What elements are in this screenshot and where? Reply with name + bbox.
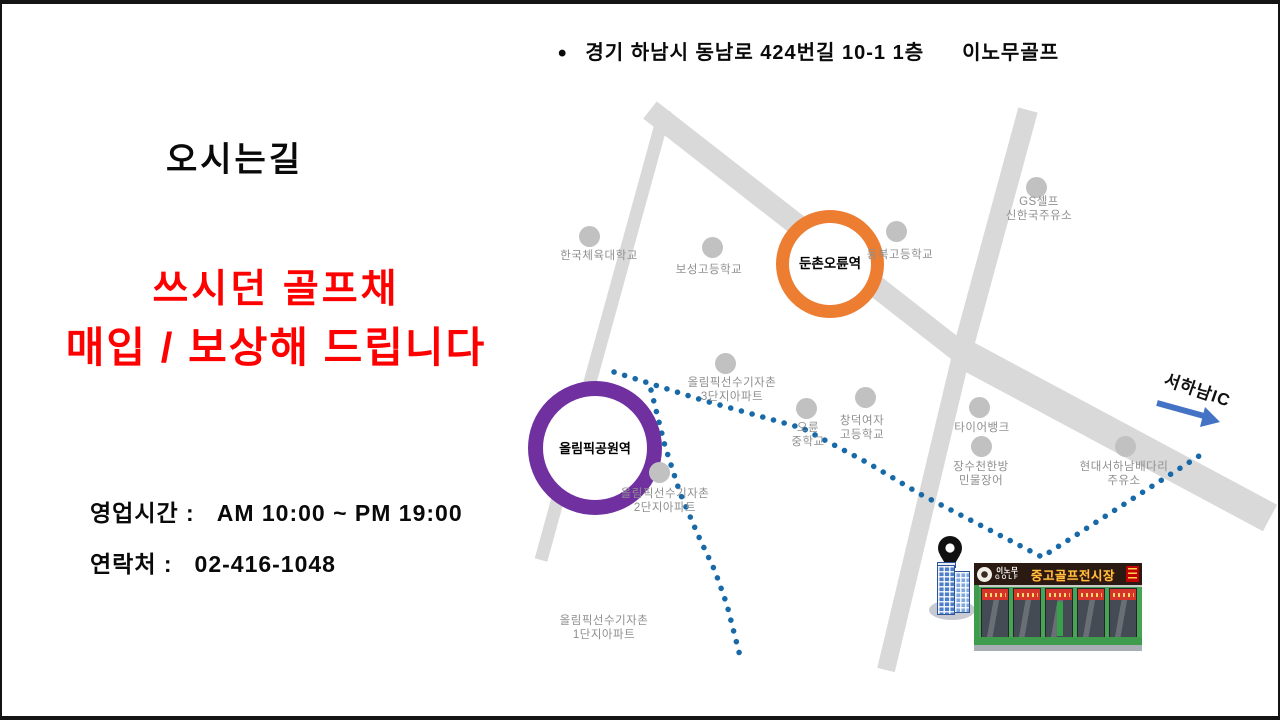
poi-dot xyxy=(715,353,736,374)
storefront-window xyxy=(1045,588,1073,638)
hours-label: 영업시간 : xyxy=(90,500,195,526)
window-green-banner xyxy=(1057,602,1063,636)
address-text: 경기 하남시 동남로 424번길 10-1 1층 xyxy=(585,42,924,64)
poi-dot xyxy=(971,436,992,457)
window-red-banner xyxy=(1014,589,1040,600)
window-glass xyxy=(982,600,1008,638)
store-sign: 이노무 GOLF 중고골프전시장 xyxy=(974,563,1142,585)
station-label: 올림픽공원역 xyxy=(557,441,633,456)
window-red-banner xyxy=(1078,589,1104,600)
store-logo-icon xyxy=(977,567,992,582)
poi-label: 올림픽선수기자촌1단지아파트 xyxy=(560,614,649,642)
map-road xyxy=(960,110,1028,360)
pavement-strip xyxy=(974,645,1142,651)
window-row xyxy=(979,587,1142,640)
flyer-canvas: •경기 하남시 동남로 424번길 10-1 1층이노무골프 오시는길 쓰시던 … xyxy=(0,0,1280,720)
page-title: 오시는길 xyxy=(166,132,303,181)
storefront-window xyxy=(1077,588,1105,638)
poi-dot xyxy=(702,237,723,258)
poi-label: 현대서하남배다리주유소 xyxy=(1080,460,1169,488)
promo-line-2: 매입 / 보상해 드립니다 xyxy=(12,327,540,369)
poi-label: 동북고등학교 xyxy=(867,248,933,262)
contact-label: 연락처 : xyxy=(90,551,173,577)
building-tower-back xyxy=(954,571,970,613)
storefront-windows xyxy=(974,585,1142,651)
direction-arrow-head xyxy=(1200,407,1220,427)
store-building-icon xyxy=(928,560,976,622)
poi-label: 타이어뱅크 xyxy=(954,421,1009,435)
green-pillar xyxy=(974,585,979,643)
poi-dot xyxy=(796,398,817,419)
info-block: 영업시간 :AM 10:00 ~ PM 19:00 연락처 :02-416-10… xyxy=(90,494,463,596)
sign-title: 중고골프전시장 xyxy=(1023,565,1123,584)
poi-label: 올림픽선수기자촌3단지아파트 xyxy=(688,376,777,404)
window-glass xyxy=(1078,600,1104,638)
route-dotted-line xyxy=(651,390,740,656)
sign-brand-bottom: GOLF xyxy=(995,575,1020,582)
hours-row: 영업시간 :AM 10:00 ~ PM 19:00 xyxy=(90,494,463,528)
map-road xyxy=(886,360,960,670)
grass-strip xyxy=(974,637,1142,645)
station-label: 둔촌오륜역 xyxy=(797,256,863,272)
poi-dot xyxy=(1115,436,1136,457)
storefront-photo: 이노무 GOLF 중고골프전시장 xyxy=(974,563,1142,651)
poi-dot xyxy=(969,397,990,418)
sign-brand-top: 이노무 xyxy=(996,567,1018,575)
hours-value: AM 10:00 ~ PM 19:00 xyxy=(217,500,463,526)
window-red-banner xyxy=(1046,589,1072,600)
promo-line-1: 쓰시던 골프채 xyxy=(12,270,540,309)
poi-label: GS셀프신한국주유소 xyxy=(1006,195,1072,223)
poi-label: 한국체육대학교 xyxy=(560,249,638,263)
window-red-banner xyxy=(982,589,1008,600)
sign-badge xyxy=(1126,566,1139,582)
window-red-banner xyxy=(1110,589,1136,600)
building-tower-front xyxy=(937,565,955,615)
storefront-window xyxy=(1109,588,1137,638)
window-glass xyxy=(1014,600,1040,638)
contact-row: 연락처 :02-416-1048 xyxy=(90,545,463,579)
brand-name: 이노무골프 xyxy=(962,42,1059,64)
contact-value: 02-416-1048 xyxy=(195,551,336,577)
address-line: •경기 하남시 동남로 424번길 10-1 1층이노무골프 xyxy=(558,36,1059,68)
poi-label: 올림픽선수기자촌2단지아파트 xyxy=(621,487,710,515)
poi-label: 장수천한방민물장어 xyxy=(953,460,1008,488)
poi-label: 보성고등학교 xyxy=(676,263,742,277)
station-marker: 둔촌오륜역 xyxy=(776,210,884,318)
window-glass xyxy=(1110,600,1136,638)
map-road xyxy=(960,352,1270,518)
store-sign-brand: 이노무 GOLF xyxy=(995,567,1020,582)
storefront-window xyxy=(981,588,1009,638)
poi-label: 오륜중학교 xyxy=(791,421,824,449)
direction-arrow-shaft xyxy=(1157,403,1204,416)
poi-dot xyxy=(886,221,907,242)
poi-dot xyxy=(579,226,600,247)
bullet-icon: • xyxy=(558,40,567,67)
poi-label: 창덕여자고등학교 xyxy=(840,414,884,442)
poi-dot xyxy=(649,462,670,483)
promo-block: 쓰시던 골프채 매입 / 보상해 드립니다 xyxy=(12,270,540,369)
poi-dot xyxy=(855,387,876,408)
store-pin-hole xyxy=(945,543,954,552)
storefront-window xyxy=(1013,588,1041,638)
